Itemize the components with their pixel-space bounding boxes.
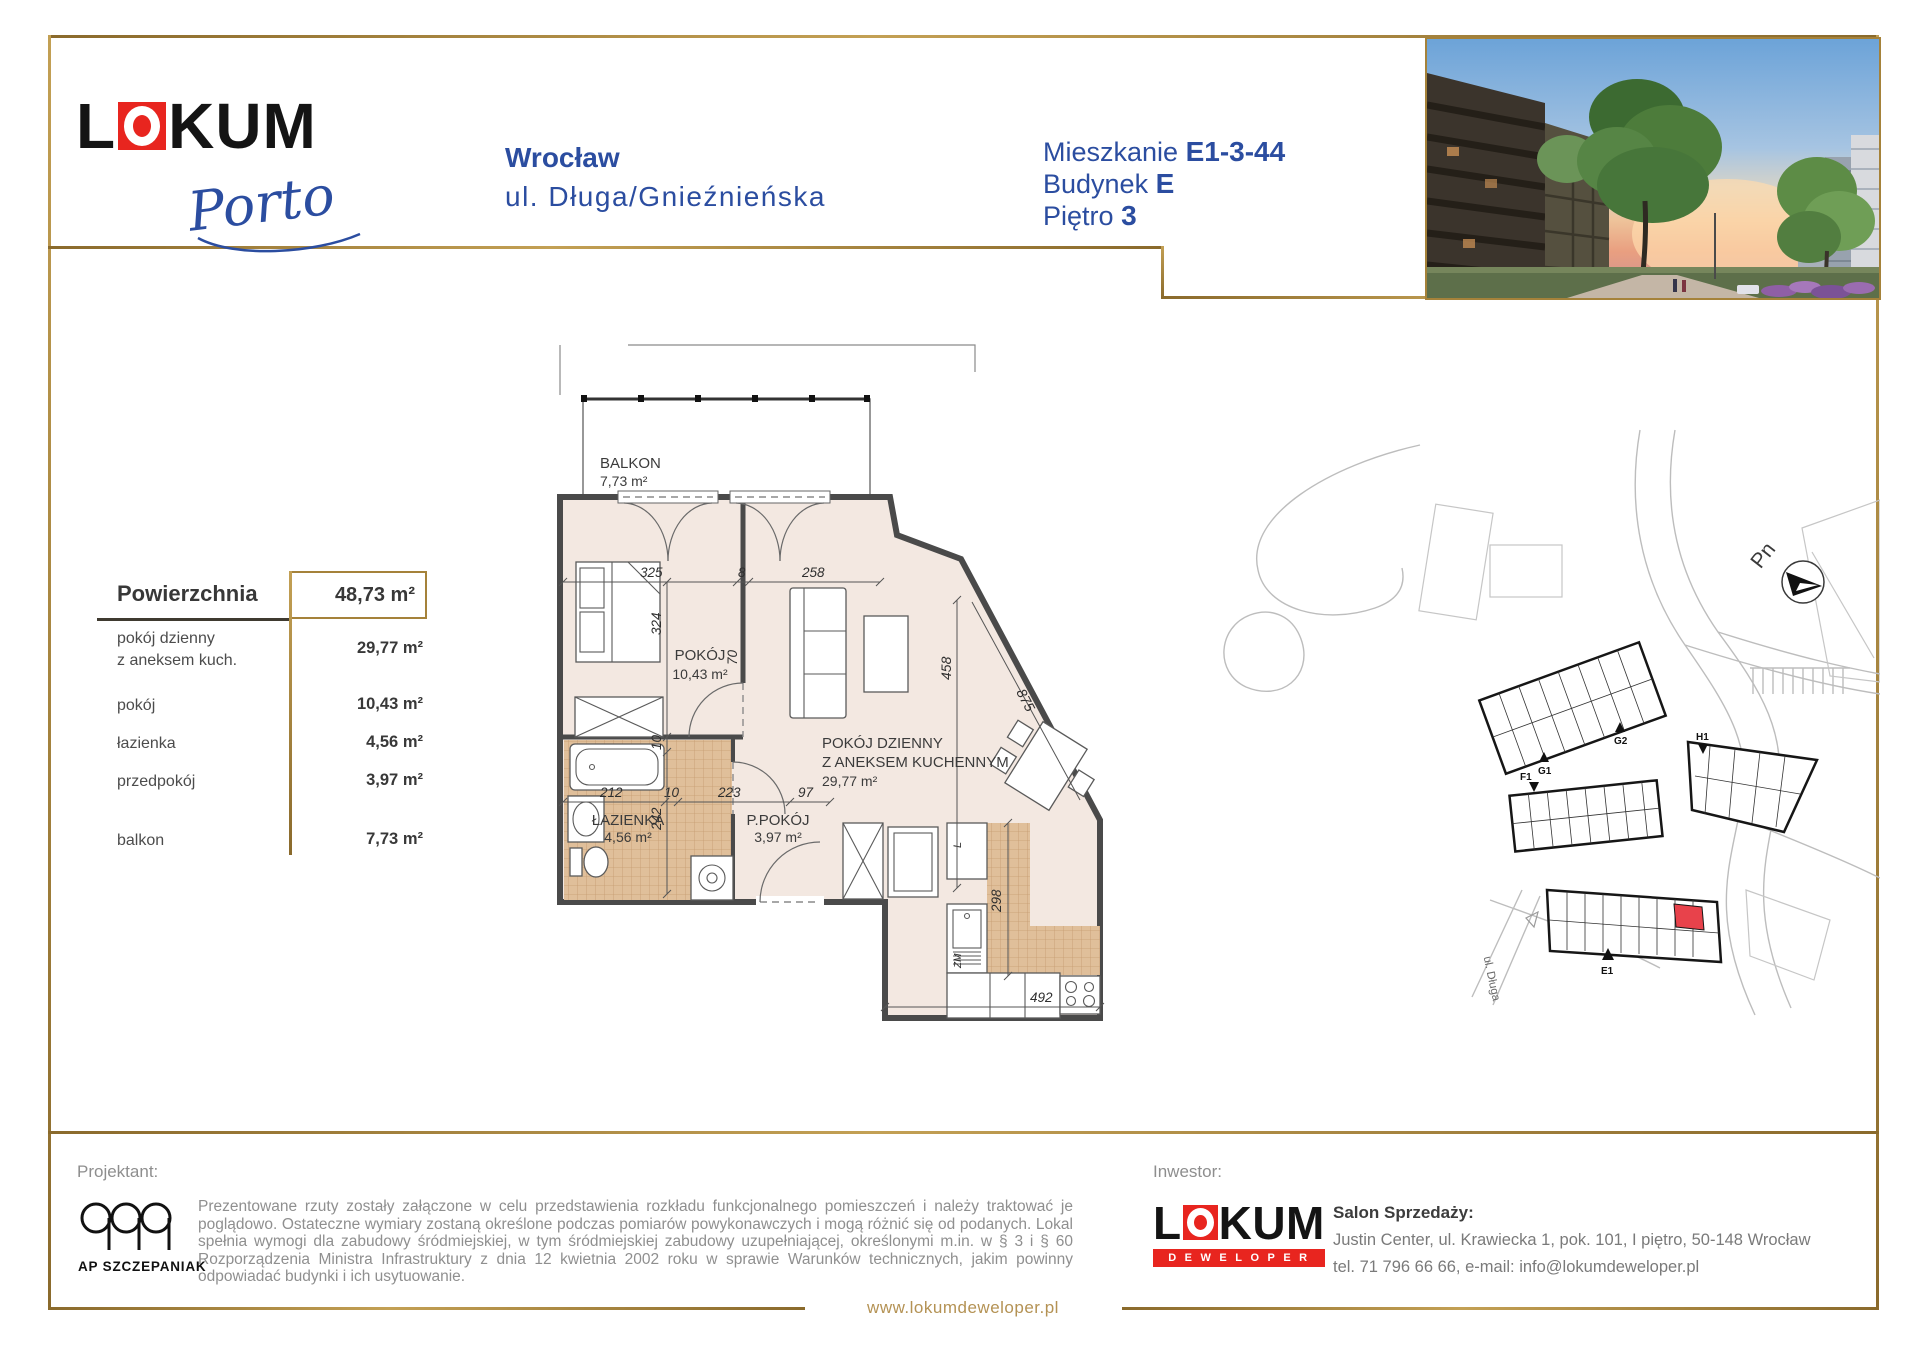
upper-slab-outline — [628, 345, 975, 372]
compass: Pn — [1746, 538, 1824, 603]
row-pokoj-label: pokój — [117, 695, 155, 717]
row-lazienka-value: 4,56 m² — [305, 733, 423, 752]
frame-bottom-right — [1122, 1307, 1879, 1310]
dim-324: 324 — [649, 612, 664, 635]
dim-298: 298 — [989, 889, 1004, 913]
building-row: Budynek E — [1043, 168, 1285, 200]
sink-label: ZM — [953, 953, 964, 969]
brand-wordmark: LKUM — [76, 94, 317, 158]
highlighted-unit — [1674, 904, 1704, 930]
apartment-number-row: Mieszkanie E1-3-44 — [1043, 136, 1285, 168]
brand-script-swash — [194, 232, 364, 258]
floor-number: 3 — [1121, 200, 1137, 231]
balcony-label: BALKON — [600, 455, 661, 472]
dim-325: 325 — [640, 565, 663, 580]
label-e1: E1 — [1601, 966, 1614, 977]
total-area-box: 48,73 m² — [289, 571, 427, 619]
svg-text:POKÓJ DZIENNY: POKÓJ DZIENNY — [822, 735, 943, 752]
wardrobe — [575, 697, 663, 737]
investor-logo: LKUM DEWELOPER — [1153, 1200, 1325, 1267]
pokoj-label: POKÓJ — [675, 647, 726, 664]
sofa — [790, 588, 846, 718]
balcony-area: 7,73 m² — [600, 473, 648, 489]
ppokoj-label: P.POKÓJ — [746, 812, 809, 829]
brand-o-icon — [118, 102, 166, 150]
balcony: BALKON 7,73 m² — [581, 395, 870, 497]
disclaimer-text: Prezentowane rzuty zostały załączone w c… — [198, 1198, 1073, 1286]
area-table-header-rule — [97, 618, 289, 621]
designer-logo: AP SZCZEPANIAK — [78, 1200, 206, 1274]
dim-10b: 10 — [649, 734, 664, 750]
dim-458: 458 — [938, 656, 954, 680]
header-apartment-info: Mieszkanie E1-3-44 Budynek E Piętro 3 — [1043, 136, 1285, 232]
row-pokoj-value: 10,43 m² — [305, 695, 423, 714]
building-photo — [1425, 37, 1881, 300]
row-przedpokoj-label: przedpokój — [117, 771, 195, 793]
header-location: Wrocław ul. Długa/Gnieźnieńska — [505, 142, 826, 213]
footer-separator — [48, 1131, 1879, 1134]
area-table-divider — [289, 571, 292, 855]
dim-223: 223 — [717, 785, 741, 800]
header-city: Wrocław — [505, 142, 826, 174]
dim-258: 258 — [801, 565, 825, 580]
brand-letters-kum: KUM — [168, 90, 317, 162]
label-g2: G2 — [1614, 736, 1628, 747]
apartment-number: E1-3-44 — [1186, 136, 1286, 167]
fridge — [888, 827, 938, 897]
designer-name: AP SZCZEPANIAK — [78, 1259, 206, 1274]
investor-sub-label: DEWELOPER — [1153, 1249, 1325, 1267]
floor-row: Piętro 3 — [1043, 200, 1285, 232]
total-area-value: 48,73 m² — [305, 584, 415, 607]
header-step — [1161, 246, 1164, 299]
dim-8: 8 — [738, 565, 746, 580]
label-h1: H1 — [1696, 732, 1709, 743]
street-name-label: ul. Długa — [1481, 955, 1502, 1002]
floor-plan: BALKON 7,73 m² — [460, 300, 1120, 1040]
dim-70: 70 — [725, 649, 740, 665]
row-living-label: pokój dziennyz aneksem kuch. — [117, 628, 237, 672]
row-balkon-label: balkon — [117, 830, 164, 852]
pokoj-area: 10,43 m² — [672, 666, 728, 682]
header-address: ul. Długa/Gnieźnieńska — [505, 181, 826, 213]
dim-492: 492 — [1030, 990, 1053, 1005]
brand-letter-l: L — [76, 90, 116, 162]
row-living-value: 29,77 m² — [305, 639, 423, 658]
label-f1: F1 — [1520, 772, 1532, 783]
building-f — [1509, 780, 1662, 851]
dim-212: 212 — [599, 785, 623, 800]
sales-office-title: Salon Sprzedaży: — [1333, 1203, 1811, 1223]
lazienka-label: ŁAZIENKA — [592, 812, 665, 829]
sales-office-address: Justin Center, ul. Krawiecka 1, pok. 101… — [1333, 1231, 1811, 1250]
dim-10a: 10 — [664, 785, 680, 800]
brand-logo: LKUM Porto — [76, 94, 317, 158]
cabinet-label: L — [952, 842, 964, 848]
frame-left — [48, 35, 51, 1310]
investor-wordmark: LKUM — [1153, 1200, 1325, 1246]
svg-text:29,77 m²: 29,77 m² — [822, 773, 878, 789]
building-id: E — [1156, 168, 1175, 199]
site-plan: G1 G2 F1 H1 E1 Pn ul. Długa — [1190, 420, 1880, 1020]
row-lazienka-label: łazienka — [117, 733, 176, 755]
ppokoj-area: 3,97 m² — [754, 829, 802, 845]
area-table: Powierzchnia 48,73 m² pokój dziennyz ane… — [97, 565, 427, 865]
sales-office-contact: tel. 71 796 66 66, e-mail: info@lokumdew… — [1333, 1258, 1811, 1277]
hall-wardrobe — [843, 823, 883, 899]
investor-o-icon — [1183, 1205, 1218, 1240]
building-e — [1547, 890, 1721, 962]
designer-label: Projektant: — [77, 1162, 158, 1182]
toilet — [570, 847, 608, 877]
building-g — [1479, 642, 1665, 773]
sales-office: Salon Sprzedaży: Justin Center, ul. Kraw… — [1333, 1203, 1811, 1277]
building-h — [1688, 742, 1817, 832]
coffee-table — [864, 616, 908, 692]
stove — [1060, 976, 1100, 1014]
lazienka-area: 4,56 m² — [604, 829, 652, 845]
frame-bottom-left — [48, 1307, 805, 1310]
kitchen-sink: ZM — [947, 904, 987, 973]
flyer-page: LKUM Porto Wrocław ul. Długa/Gnieźnieńsk… — [0, 0, 1920, 1358]
investor-label: Inwestor: — [1153, 1162, 1222, 1182]
washing-machine — [691, 856, 733, 900]
area-table-header: Powierzchnia — [117, 581, 258, 607]
compass-north-label: Pn — [1746, 538, 1780, 572]
website-link[interactable]: www.lokumdeweloper.pl — [853, 1298, 1073, 1317]
dim-97: 97 — [798, 785, 814, 800]
designer-logo-icon — [78, 1200, 188, 1252]
kitchen-cabinet: L — [947, 823, 987, 879]
row-balkon-value: 7,73 m² — [305, 830, 423, 849]
row-przedpokoj-value: 3,97 m² — [305, 771, 423, 790]
kitchen-tiles-corner — [1030, 926, 1100, 975]
svg-text:Z ANEKSEM KUCHENNYM: Z ANEKSEM KUCHENNYM — [822, 754, 1009, 771]
label-g1: G1 — [1538, 766, 1552, 777]
